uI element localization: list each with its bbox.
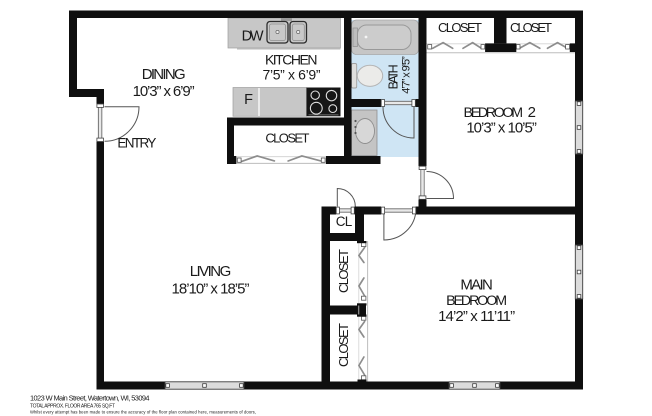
svg-text:CLOSET: CLOSET [510, 20, 552, 35]
svg-text:CLOSET: CLOSET [336, 249, 351, 293]
svg-text:CL: CL [336, 214, 353, 229]
svg-text:4’7” x 9’5”: 4’7” x 9’5” [401, 56, 413, 94]
svg-text:KITCHEN: KITCHEN [265, 52, 318, 68]
svg-text:Whilst every attempt has been: Whilst every attempt has been made to en… [30, 409, 256, 414]
svg-text:10’3” x 6’9”: 10’3” x 6’9” [133, 83, 195, 100]
svg-text:MAIN: MAIN [460, 276, 493, 293]
svg-text:DW: DW [242, 29, 264, 45]
svg-text:LIVING: LIVING [190, 263, 232, 280]
svg-text:CLOSET: CLOSET [265, 131, 309, 146]
svg-text:14’2” x 11’11”: 14’2” x 11’11” [438, 308, 515, 325]
svg-text:CLOSET: CLOSET [336, 323, 351, 367]
svg-text:F: F [244, 92, 253, 108]
svg-text:TOTAL APPROX. FLOOR AREA 765 S: TOTAL APPROX. FLOOR AREA 765 SQ.FT [30, 404, 115, 410]
svg-text:10’3” x 10’5”: 10’3” x 10’5” [466, 120, 536, 137]
svg-text:BATH: BATH [387, 64, 401, 89]
svg-text:BEDROOM: BEDROOM [446, 293, 507, 309]
svg-text:1023 W Main Street, Watertown,: 1023 W Main Street, Watertown, WI, 53094 [30, 394, 150, 403]
svg-text:CLOSET: CLOSET [438, 20, 482, 35]
svg-text:7’5” x 6’9”: 7’5” x 6’9” [263, 67, 321, 83]
svg-text:ENTRY: ENTRY [117, 136, 156, 151]
svg-text:18’10” x 18’5”: 18’10” x 18’5” [172, 281, 250, 298]
svg-text:DINING: DINING [142, 66, 186, 83]
svg-text:2: 2 [528, 104, 536, 121]
